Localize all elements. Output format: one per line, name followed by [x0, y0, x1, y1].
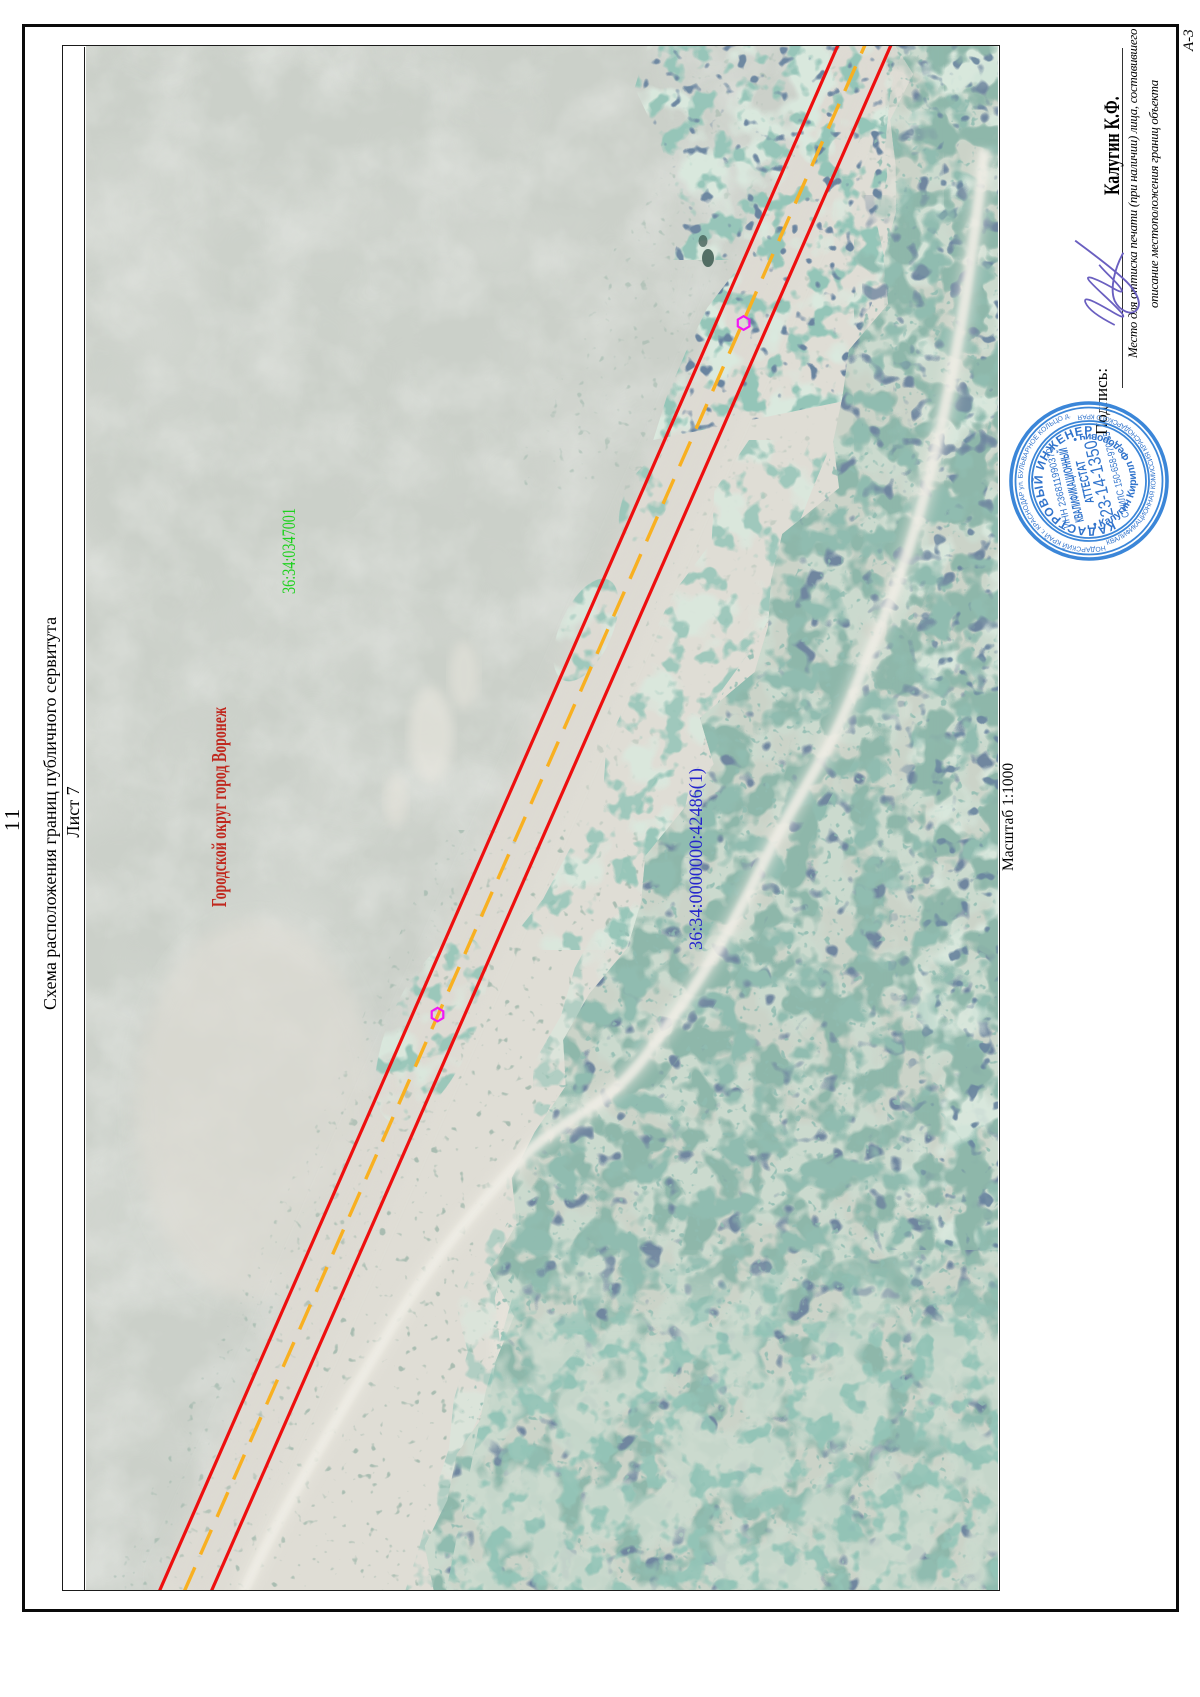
svg-text:36:34:0347001: 36:34:0347001	[279, 508, 300, 594]
svg-text:Городской округ город Воронеж: Городской округ город Воронеж	[207, 706, 231, 907]
svg-text:36:34:0000000:42486(1): 36:34:0000000:42486(1)	[686, 768, 707, 950]
